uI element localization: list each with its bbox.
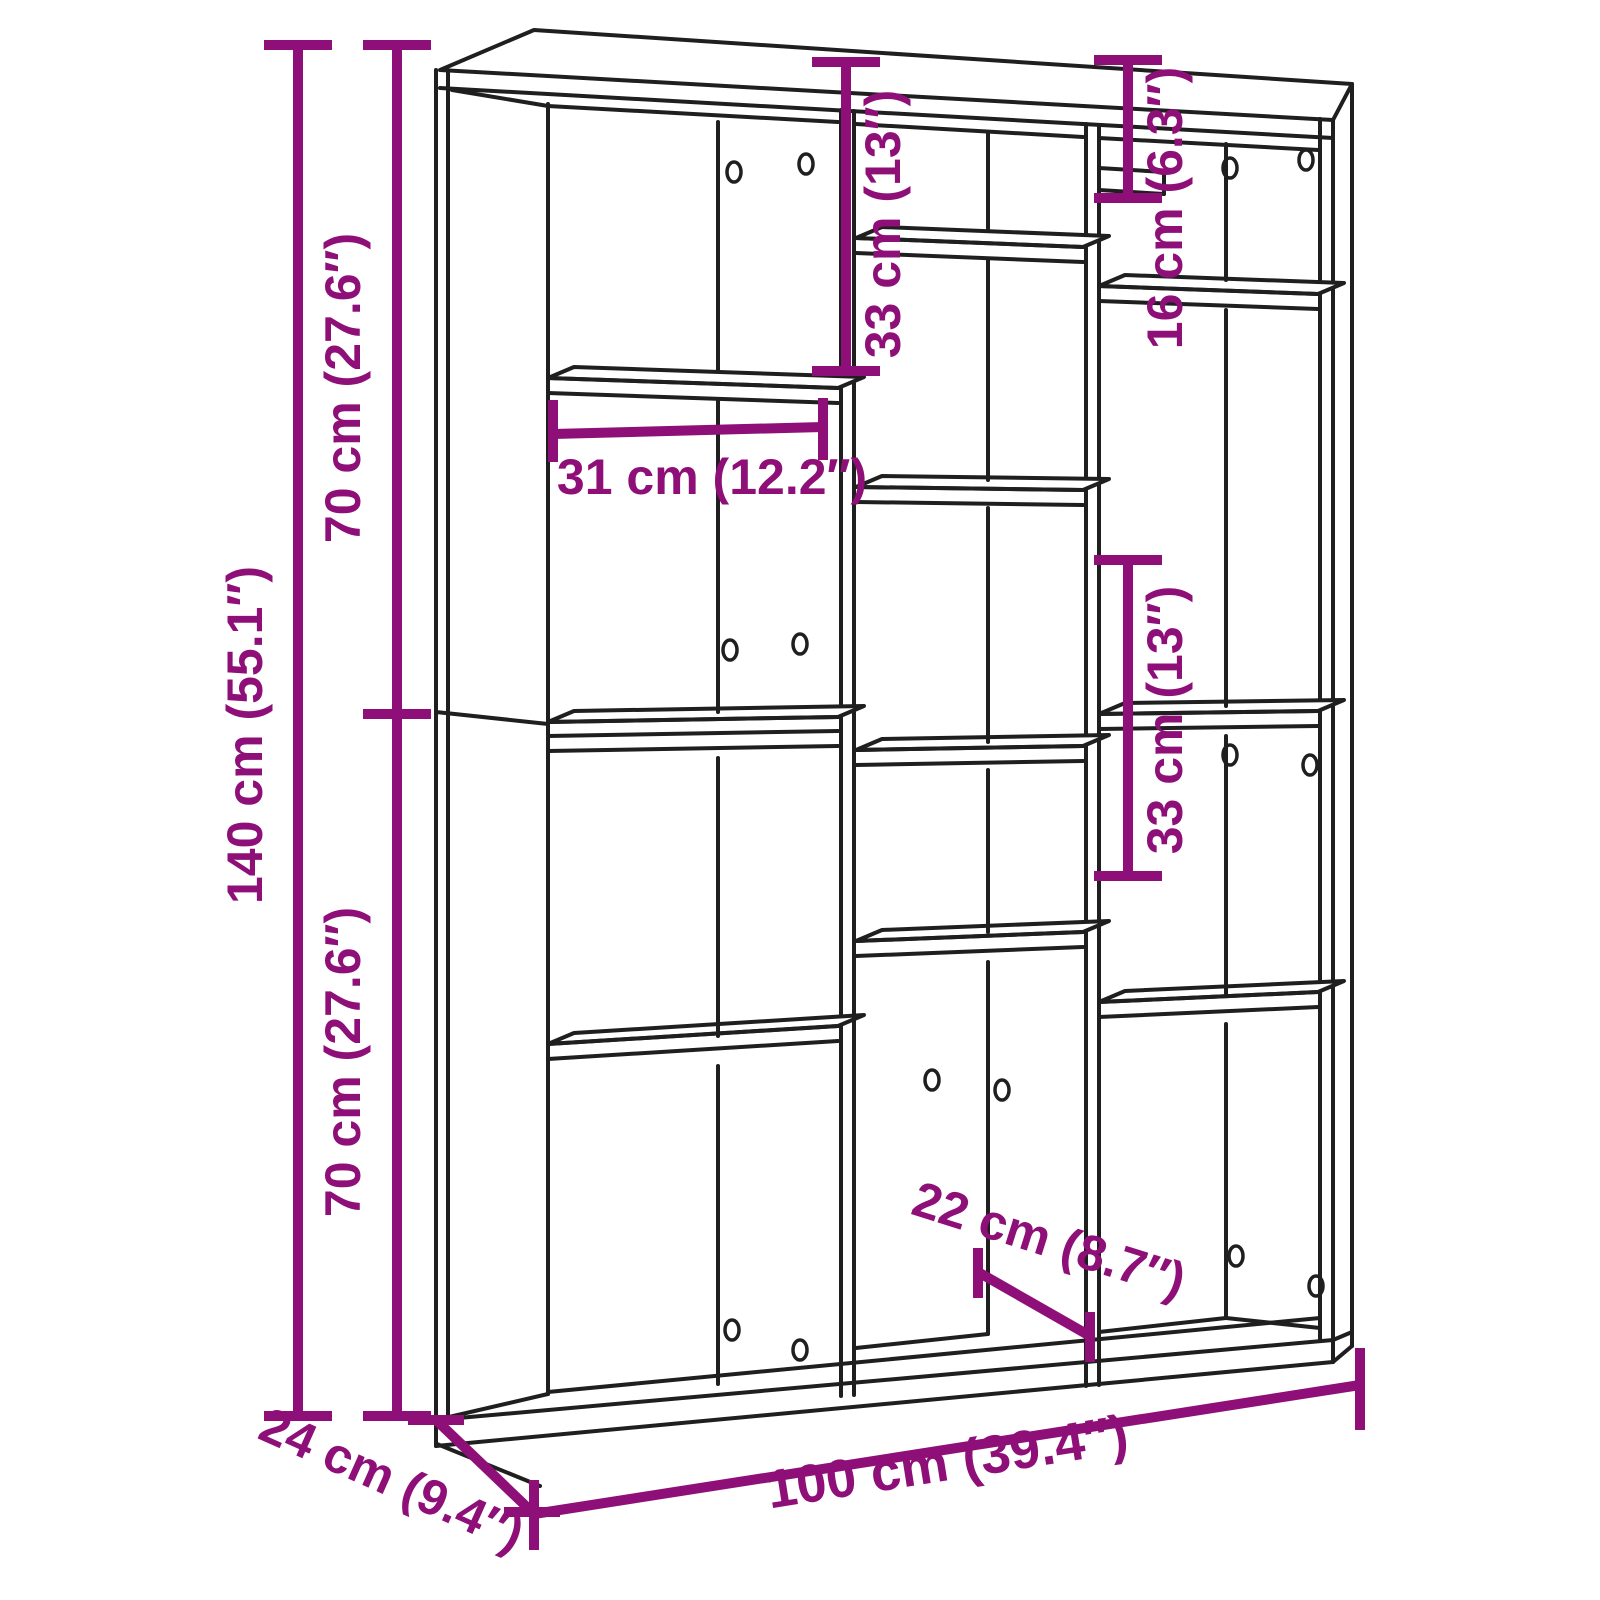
- dimension-label-total-width: 100 cm (39.4″): [762, 1404, 1132, 1520]
- dimension-label-total-height: 140 cm (55.1″): [217, 566, 273, 904]
- dimension-label-middle-bottom-width: 22 cm (8.7″): [906, 1171, 1192, 1309]
- furniture-dimension-diagram: 140 cm (55.1″) 70 cm (27.6″) 70 cm (27.6…: [0, 0, 1600, 1600]
- screw-holes: [723, 150, 1323, 1360]
- dimension-total-width: 100 cm (39.4″): [534, 1348, 1360, 1550]
- dimension-label-lower-section-height: 70 cm (27.6″): [315, 907, 371, 1217]
- dimension-left-compartment-width: 31 cm (12.2″): [553, 398, 867, 505]
- dimension-total-depth: 24 cm (9.4″): [252, 1396, 560, 1562]
- dimension-label-right-middle-compartment: 33 cm (13″): [1137, 586, 1193, 855]
- dimension-label-right-top-compartment: 16 cm (6.3″): [1137, 67, 1193, 349]
- dimension-section-heights: 70 cm (27.6″) 70 cm (27.6″): [315, 45, 431, 1416]
- dimension-label-left-compartment-width: 31 cm (12.2″): [557, 449, 867, 505]
- dimension-label-middle-top-compartment: 33 cm (13″): [855, 90, 911, 359]
- dimension-right-middle-compartment: 33 cm (13″): [1094, 560, 1193, 876]
- dimension-label-upper-section-height: 70 cm (27.6″): [315, 233, 371, 543]
- dimension-label-total-depth: 24 cm (9.4″): [252, 1396, 533, 1562]
- right-column-shelves: [1099, 168, 1344, 1017]
- dimension-diagram-page: 140 cm (55.1″) 70 cm (27.6″) 70 cm (27.6…: [0, 0, 1600, 1600]
